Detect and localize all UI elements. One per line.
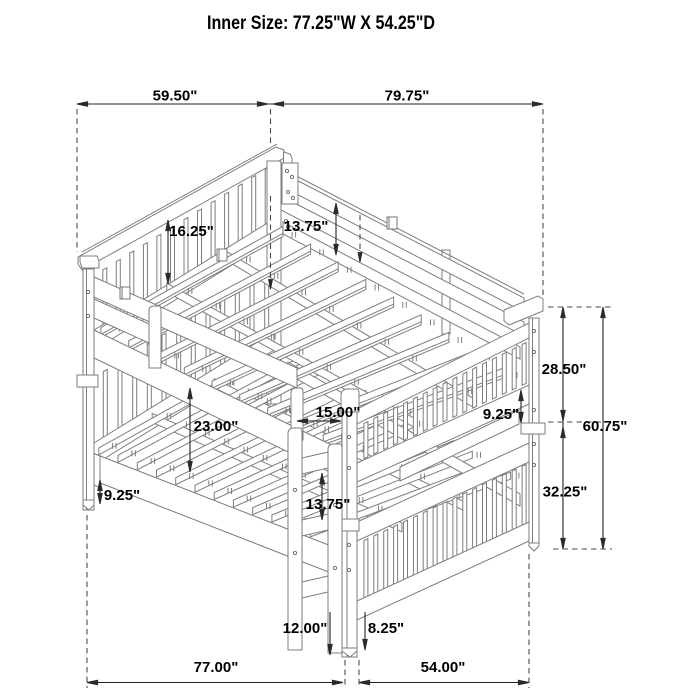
svg-text:59.50": 59.50" [153, 88, 198, 105]
svg-text:28.50": 28.50" [542, 361, 587, 378]
svg-text:16.25": 16.25" [169, 223, 214, 240]
svg-text:8.25": 8.25" [368, 620, 404, 637]
svg-text:60.75": 60.75" [583, 418, 628, 435]
svg-text:13.75": 13.75" [284, 218, 329, 235]
svg-text:13.75": 13.75" [306, 496, 351, 513]
svg-text:9.25": 9.25" [104, 487, 140, 504]
svg-text:Inner Size: 77.25"W X 54.25"D: Inner Size: 77.25"W X 54.25"D [207, 13, 435, 34]
svg-text:23.00": 23.00" [194, 418, 239, 435]
svg-text:12.00": 12.00" [283, 620, 328, 637]
svg-text:79.75": 79.75" [385, 88, 430, 105]
svg-text:54.00": 54.00" [421, 659, 466, 676]
svg-text:32.25": 32.25" [543, 484, 588, 501]
svg-text:15.00": 15.00" [316, 404, 361, 421]
svg-text:77.00": 77.00" [194, 659, 239, 676]
svg-text:9.25": 9.25" [483, 406, 519, 423]
